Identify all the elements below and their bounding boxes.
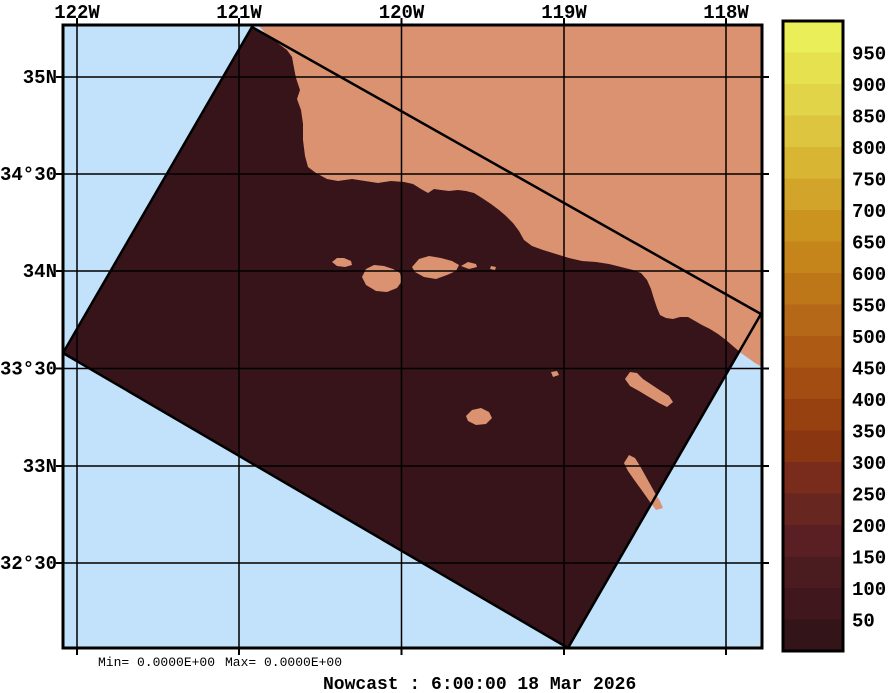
colorbar-tick-300: 300 [852,453,886,475]
colorbar-tick-50: 50 [852,611,875,633]
colorbar-segment [783,147,843,179]
lat-label-34n: 34N [23,261,57,283]
lon-label-122w: 122W [54,2,100,24]
lat-label-35n: 35N [23,67,57,89]
colorbar-segment [783,305,843,337]
colorbar-segment [783,242,843,274]
colorbar-segment [783,53,843,85]
colorbar-segment [783,588,843,620]
colorbar-labels: 950 900 850 800 750 700 650 600 550 500 … [852,44,886,633]
colorbar-tick-500: 500 [852,327,886,349]
colorbar-segment [783,179,843,211]
colorbar-segment [783,84,843,116]
colorbar-segment [783,494,843,526]
lon-label-120w: 120W [379,2,425,24]
colorbar-tick-950: 950 [852,44,886,66]
colorbar-segment [783,210,843,242]
colorbar-tick-400: 400 [852,390,886,412]
colorbar-segment [783,399,843,431]
map-panel: 122W 121W 120W 119W 118W 35N 34°30 34N 3… [0,2,769,655]
lon-label-118w: 118W [703,2,749,24]
left-axis-labels: 35N 34°30 34N 33°30 33N 32°30 [0,67,57,575]
colorbar-tick-850: 850 [852,107,886,129]
colorbar-tick-650: 650 [852,233,886,255]
figure-caption: Nowcast : 6:00:00 18 Mar 2026 [323,675,636,693]
colorbar-tick-550: 550 [852,296,886,318]
colorbar-segment [783,336,843,368]
colorbar-segment [783,431,843,463]
colorbar-segment [783,462,843,494]
colorbar-tick-150: 150 [852,548,886,570]
colorbar-segment [783,557,843,589]
top-axis-labels: 122W 121W 120W 119W 118W [54,2,749,24]
colorbar-segment [783,273,843,305]
lat-label-3230: 32°30 [0,553,57,575]
lat-label-3330: 33°30 [0,359,57,381]
lon-label-119w: 119W [541,2,587,24]
colorbar-segment [783,620,843,652]
colorbar-segment [783,525,843,557]
colorbar-tick-700: 700 [852,201,886,223]
lat-label-33n: 33N [23,456,57,478]
colorbar-tick-350: 350 [852,422,886,444]
colorbar-tick-200: 200 [852,516,886,538]
lat-label-3430: 34°30 [0,164,57,186]
field-min-stat: Min= 0.0000E+00 [98,655,215,670]
colorbar-tick-800: 800 [852,138,886,160]
colorbar-tick-450: 450 [852,359,886,381]
lon-label-121w: 121W [216,2,262,24]
colorbar-segment [783,116,843,148]
colorbar: 950 900 850 800 750 700 650 600 550 500 … [783,21,886,651]
colorbar-tick-900: 900 [852,75,886,97]
footer: Min= 0.0000E+00 Max= 0.0000E+00 Nowcast … [98,655,636,693]
colorbar-tick-100: 100 [852,579,886,601]
field-max-stat: Max= 0.0000E+00 [225,655,342,670]
colorbar-segment [783,368,843,400]
colorbar-segment [783,21,843,53]
colorbar-segments [783,21,843,651]
colorbar-tick-250: 250 [852,485,886,507]
nowcast-map-svg: 122W 121W 120W 119W 118W 35N 34°30 34N 3… [0,0,890,693]
colorbar-tick-600: 600 [852,264,886,286]
colorbar-tick-750: 750 [852,170,886,192]
nowcast-figure: 122W 121W 120W 119W 118W 35N 34°30 34N 3… [0,0,890,693]
